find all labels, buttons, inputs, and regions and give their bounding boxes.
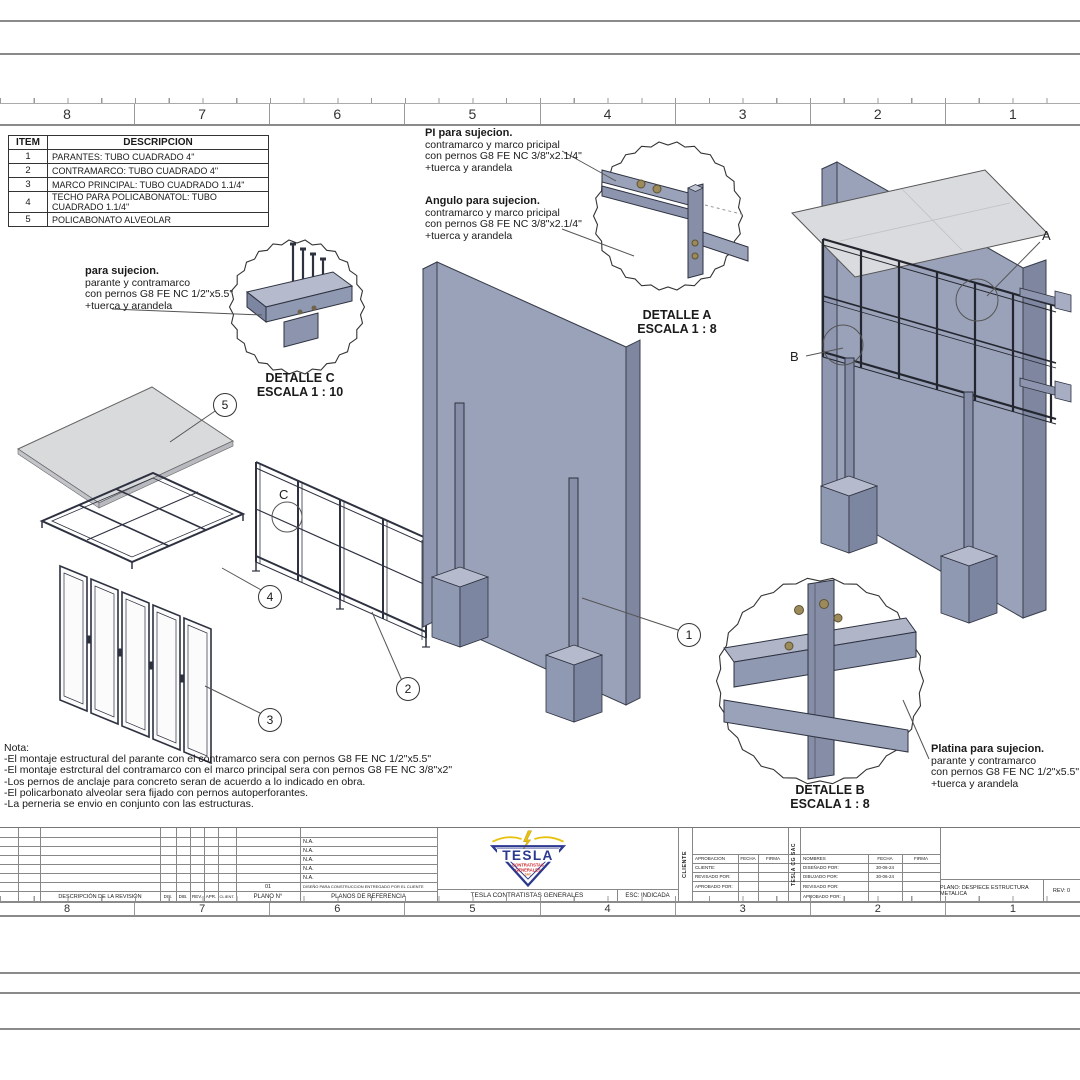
- ruler-number: 3: [740, 903, 746, 915]
- item-number: 3: [9, 178, 48, 192]
- annotation-parante: para sujecion. parante y contramarco con…: [85, 266, 233, 312]
- table-row: 4TECHO PARA POLICABONATOL: TUBO CUADRADO…: [9, 192, 269, 213]
- approval-firma-header: FIRMA: [758, 854, 788, 863]
- item-desc: CONTRAMARCO: TUBO CUADRADO 4": [48, 164, 269, 178]
- annotation-title: PI para sujecion.: [425, 128, 582, 140]
- annotation-line: +tuerca y arandela: [425, 231, 582, 243]
- table-row: 3MARCO PRINCIPAL: TUBO CUADRADO 1.1/4": [9, 178, 269, 192]
- ref-note: DISEÑO PARA CONSTRUCCION ENTREGADO POR E…: [300, 882, 437, 891]
- ruler-number: 8: [64, 903, 70, 915]
- annotation-line: con pernos G8 FE NC 1/2"x5.5": [85, 289, 233, 301]
- ruler-number: 4: [605, 903, 611, 915]
- approval-header: APROBACION: [692, 854, 738, 863]
- detail-scale: ESCALA 1 : 10: [225, 386, 375, 400]
- logo-sub3: SAC: [525, 872, 532, 876]
- ruler-cell: 4: [541, 903, 676, 915]
- detail-b-label: DETALLE B ESCALA 1 : 8: [755, 784, 905, 811]
- table-row: 1PARANTES: TUBO CUADRADO 4": [9, 150, 269, 164]
- item-desc: MARCO PRINCIPAL: TUBO CUADRADO 1.1/4": [48, 178, 269, 192]
- tesla-cg-vertical-label: TESLA CG SAC: [788, 828, 800, 902]
- balloon-number: 3: [267, 713, 274, 727]
- ruler-cell: 5: [405, 903, 540, 915]
- balloon-3: 3: [258, 708, 282, 732]
- parts-header-item: ITEM: [9, 136, 48, 150]
- annotation-title: Angulo para sujecion.: [425, 196, 582, 208]
- annotation-line: con pernos G8 FE NC 1/2"x5.5": [931, 767, 1079, 779]
- names-fecha-header: FECHA: [868, 854, 902, 863]
- balloon-1: 1: [677, 623, 701, 647]
- ref-row: N.A.: [300, 855, 437, 864]
- annotation-line: con pernos G8 FE NC 3/8"x2.1/4": [425, 151, 582, 163]
- ruler-bottom: 8 7 6 5 4 3 2 1: [0, 901, 1080, 917]
- table-row: 5POLICABONATO ALVEOLAR: [9, 213, 269, 227]
- parts-table: ITEM DESCRIPCION 1PARANTES: TUBO CUADRAD…: [8, 135, 269, 227]
- ruler-cell: 7: [135, 903, 270, 915]
- approval-row: REVISADO POR:: [692, 872, 738, 881]
- note-line: -La perneria se envio en conjunto con la…: [4, 799, 452, 810]
- table-row: 2CONTRAMARCO: TUBO CUADRADO 4": [9, 164, 269, 178]
- detail-c-marker: C: [279, 487, 288, 502]
- tesla-logo: TESLA CONTRATISTAS GENERALES SAC: [487, 830, 569, 888]
- logo-arc-right: [534, 837, 563, 841]
- detail-b-marker: B: [790, 349, 799, 364]
- approval-row: APROBADO POR:: [692, 881, 738, 891]
- item-desc: PARANTES: TUBO CUADRADO 4": [48, 150, 269, 164]
- item-desc: TECHO PARA POLICABONATOL: TUBO CUADRADO …: [48, 192, 269, 213]
- names-firma-header: FIRMA: [902, 854, 940, 863]
- annotation-angulo: Angulo para sujecion. contramarco y marc…: [425, 196, 582, 242]
- ruler-number: 2: [875, 903, 881, 915]
- note-line: -El montaje estrctural del contramarco c…: [4, 765, 452, 776]
- detail-a-label: DETALLE A ESCALA 1 : 8: [602, 309, 752, 336]
- parts-header-desc: DESCRIPCION: [48, 136, 269, 150]
- panel-frames: [60, 566, 211, 763]
- cliente-label-text: CLIENTE: [682, 851, 688, 878]
- annotation-title: Platina para sujecion.: [931, 744, 1079, 756]
- plano-n-value: 01: [236, 882, 300, 891]
- balloon-number: 2: [405, 682, 412, 696]
- detail-c-view: [230, 240, 365, 374]
- annotation-title: para sujecion.: [85, 266, 233, 278]
- balloon-4: 4: [258, 585, 282, 609]
- detail-a-view: [594, 142, 749, 290]
- assembled-structure: [792, 162, 1071, 623]
- balloon-5: 5: [213, 393, 237, 417]
- ruler-number: 5: [469, 903, 475, 915]
- ruler-cell: 3: [676, 903, 811, 915]
- names-row: REVISADO POR:: [800, 881, 868, 891]
- ruler-number: 7: [199, 903, 205, 915]
- ruler-number: 6: [334, 903, 340, 915]
- names-row: DISEÑADO POR:: [800, 863, 868, 872]
- sheet-bottom-line-1: [0, 972, 1080, 974]
- annotation-platina: Platina para sujecion. parante y contram…: [931, 744, 1079, 790]
- ruler-cell: 6: [270, 903, 405, 915]
- approval-row: CLIENTE:: [692, 863, 738, 872]
- detail-scale: ESCALA 1 : 8: [755, 798, 905, 812]
- ruler-cell: 1: [946, 903, 1080, 915]
- names-row-date: 30-06-24: [868, 863, 902, 872]
- item-number: 4: [9, 192, 48, 213]
- ref-row: N.A.: [300, 846, 437, 855]
- item-desc: POLICABONATO ALVEOLAR: [48, 213, 269, 227]
- cliente-vertical-label: CLIENTE: [678, 828, 692, 902]
- detail-a-marker: A: [1042, 228, 1051, 243]
- balloon-number: 1: [686, 628, 693, 642]
- ruler-cell: 2: [811, 903, 946, 915]
- annotation-line: +tuerca y arandela: [931, 779, 1079, 791]
- ruler-number: 1: [1010, 903, 1016, 915]
- annotation-line: con pernos G8 FE NC 3/8"x2.1/4": [425, 219, 582, 231]
- balloon-number: 4: [267, 590, 274, 604]
- balloon-2: 2: [396, 677, 420, 701]
- ruler-cell: 8: [0, 903, 135, 915]
- ref-row: N.A.: [300, 873, 437, 882]
- ref-row: N.A.: [300, 864, 437, 873]
- tesla-cg-label-text: TESLA CG SAC: [791, 843, 797, 886]
- ref-row: N.A.: [300, 837, 437, 846]
- logo-arc-left: [492, 837, 521, 841]
- detail-scale: ESCALA 1 : 8: [602, 323, 752, 337]
- detail-b-view: [717, 578, 924, 783]
- balloon-number: 5: [222, 398, 229, 412]
- detail-title: DETALLE C: [225, 372, 375, 386]
- annotation-line: +tuerca y arandela: [425, 163, 582, 175]
- parts-table-header: ITEM DESCRIPCION: [9, 136, 269, 150]
- item-number: 1: [9, 150, 48, 164]
- logo-name: TESLA: [502, 848, 554, 863]
- drawing-sheet: 8 7 6 5 4 3 2 1: [0, 0, 1080, 1080]
- names-row-date: 30-06-24: [868, 872, 902, 881]
- item-number: 2: [9, 164, 48, 178]
- notes-block: Nota: -El montaje estructural del parant…: [4, 743, 452, 810]
- title-block: DESCRIPCIÓN DE LA REVISIÓN DIS. DIB. REV…: [0, 827, 1080, 901]
- detail-title: DETALLE A: [602, 309, 752, 323]
- sheet-bottom-line-3: [0, 1028, 1080, 1030]
- names-header: NOMBRES: [800, 854, 868, 863]
- names-row: DIBUJADO POR:: [800, 872, 868, 881]
- approval-fecha-header: FECHA: [738, 854, 758, 863]
- sheet-bottom-line-2: [0, 992, 1080, 994]
- detail-title: DETALLE B: [755, 784, 905, 798]
- item-number: 5: [9, 213, 48, 227]
- annotation-pi: PI para sujecion. contramarco y marco pr…: [425, 128, 582, 174]
- detail-c-label: DETALLE C ESCALA 1 : 10: [225, 372, 375, 399]
- annotation-line: +tuerca y arandela: [85, 301, 233, 313]
